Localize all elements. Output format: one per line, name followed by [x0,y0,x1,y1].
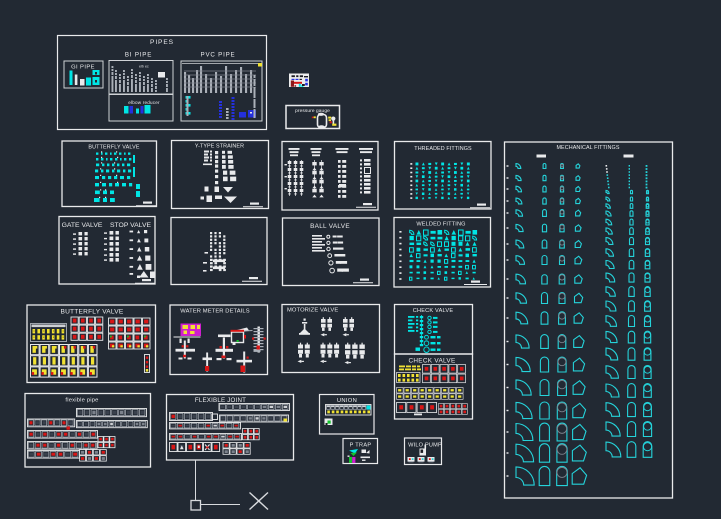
svg-text:elbow reducer: elbow reducer [128,100,160,105]
svg-text:flexible pipe: flexible pipe [65,398,98,404]
svg-text:BALL VALVE: BALL VALVE [310,223,350,230]
svg-text:PVC PIPE: PVC PIPE [201,52,236,59]
svg-text:pressure gauge: pressure gauge [295,108,330,114]
svg-text:Y-TYPE STRAINER: Y-TYPE STRAINER [195,144,244,150]
svg-text:THREADED FITTINGS: THREADED FITTINGS [414,146,472,152]
svg-text:PIPES: PIPES [150,39,174,46]
svg-text:elb ec: elb ec [139,65,149,69]
svg-text:WELDED FITTING: WELDED FITTING [416,222,465,228]
svg-text:BUTTERFLY VALVE: BUTTERFLY VALVE [61,309,124,316]
svg-text:CHECK VALVE: CHECK VALVE [413,308,454,314]
svg-text:FLEXIBLE JOINT: FLEXIBLE JOINT [195,397,246,404]
svg-text:UNION: UNION [337,398,357,404]
svg-text:MOTORIZE VALVE: MOTORIZE VALVE [287,308,338,314]
svg-text:MECHANICAL FITTINGS: MECHANICAL FITTINGS [556,145,619,151]
svg-text:P TRAP: P TRAP [350,443,372,449]
svg-text:CHECK VALVE: CHECK VALVE [408,358,455,365]
svg-text:WATER METER DETAILS: WATER METER DETAILS [180,309,249,315]
svg-text:BI PIPE: BI PIPE [125,52,152,59]
svg-text:GATE VALVE: GATE VALVE [62,222,103,229]
svg-text:STOP VALVE: STOP VALVE [110,222,152,229]
svg-text:BUTTERFLY VALVE: BUTTERFLY VALVE [88,145,140,151]
svg-text:GI PIPE: GI PIPE [71,65,95,71]
